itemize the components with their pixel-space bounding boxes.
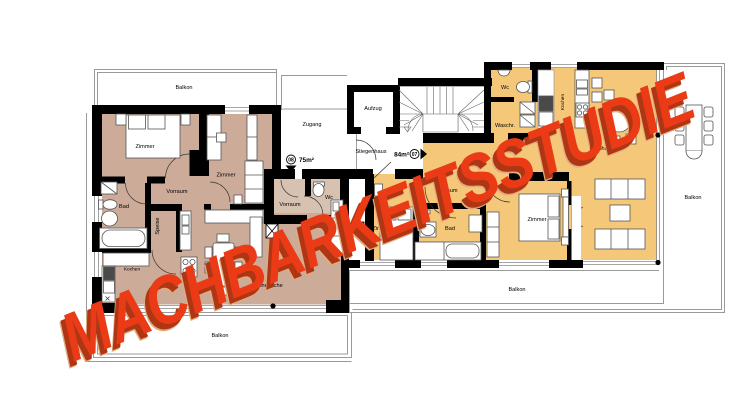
svg-text:07: 07 [412, 152, 418, 158]
svg-text:Zugang: Zugang [303, 122, 322, 128]
svg-text:Zimmer: Zimmer [136, 144, 155, 150]
svg-text:Wc: Wc [501, 85, 509, 91]
svg-text:Balkon: Balkon [175, 85, 192, 91]
svg-text:Aufzug: Aufzug [364, 106, 381, 112]
svg-text:Stiegenhaus: Stiegenhaus [355, 149, 386, 155]
svg-text:75m²: 75m² [299, 157, 314, 164]
svg-text:Balkon: Balkon [211, 333, 228, 339]
svg-text:Zimmer: Zimmer [528, 217, 547, 223]
svg-text:Vorraum: Vorraum [166, 189, 187, 195]
svg-text:84m²: 84m² [394, 152, 409, 159]
svg-text:08: 08 [288, 158, 294, 164]
svg-text:Speise: Speise [155, 217, 161, 234]
svg-text:Zimmer: Zimmer [217, 173, 236, 179]
svg-text:Balkon: Balkon [684, 195, 701, 201]
svg-text:Bad: Bad [119, 204, 129, 210]
svg-text:Balkon: Balkon [508, 287, 525, 293]
